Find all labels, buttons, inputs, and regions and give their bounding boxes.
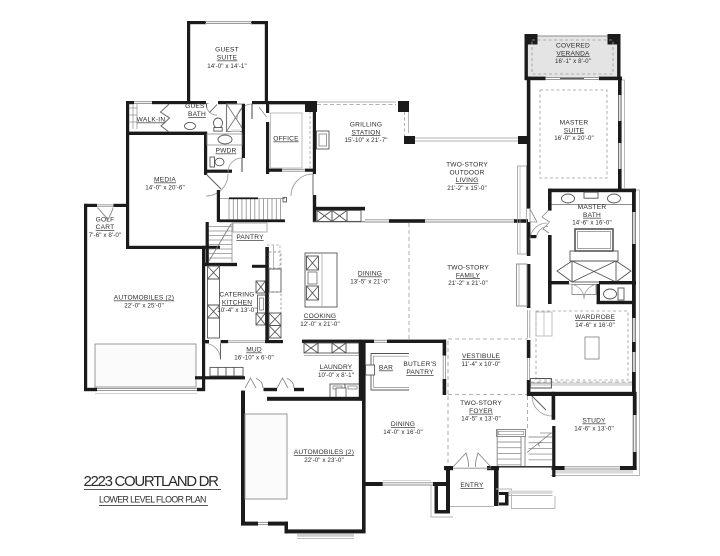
svg-text:14'-6" x 13'-0": 14'-6" x 13'-0" [574,426,614,433]
svg-text:LOWER LEVEL FLOOR PLAN: LOWER LEVEL FLOOR PLAN [99,495,207,505]
svg-text:PANTRY: PANTRY [236,234,264,241]
svg-text:SUITE: SUITE [564,127,585,134]
svg-text:DINING: DINING [358,271,382,278]
svg-text:TWO-STORY: TWO-STORY [460,400,502,407]
svg-text:PANTRY: PANTRY [406,369,434,376]
svg-text:12'-0" x 21'-0": 12'-0" x 21'-0" [300,321,340,328]
svg-text:SUITE: SUITE [217,55,238,62]
svg-text:16'-0" x 20'-0": 16'-0" x 20'-0" [554,135,594,142]
svg-text:COOKING: COOKING [304,313,337,320]
svg-text:MEDIA: MEDIA [154,177,176,184]
svg-text:MASTER: MASTER [578,204,607,211]
svg-text:11'-4" x 10'-0": 11'-4" x 10'-0" [461,361,500,368]
svg-text:BUTLER'S: BUTLER'S [403,361,437,368]
svg-text:WALK-IN: WALK-IN [137,117,166,124]
svg-text:OFFICE: OFFICE [273,136,299,143]
svg-text:10'-0" x 8'-1": 10'-0" x 8'-1" [318,372,354,379]
svg-text:16'-1" x 8'-0": 16'-1" x 8'-0" [555,58,591,65]
svg-text:2223 COURTLAND DR: 2223 COURTLAND DR [84,473,221,490]
svg-text:13'-5" x 21'-0": 13'-5" x 21'-0" [350,279,390,286]
svg-text:14'-6" x 16'-0": 14'-6" x 16'-0" [572,220,612,227]
svg-text:CATERING: CATERING [219,292,254,299]
svg-text:TWO-STORY: TWO-STORY [446,162,488,169]
svg-text:FAMILY: FAMILY [456,272,481,279]
svg-text:14'-0" x 16'-0": 14'-0" x 16'-0" [383,429,423,436]
svg-text:STUDY: STUDY [582,418,606,425]
svg-text:AUTOMOBILES (2): AUTOMOBILES (2) [114,295,174,302]
svg-text:21'-2" x 21'-0": 21'-2" x 21'-0" [448,280,488,287]
svg-text:COVERED: COVERED [556,43,590,50]
svg-text:KITCHEN: KITCHEN [222,299,252,306]
svg-text:MUD: MUD [246,347,262,354]
svg-text:14'-0" x 14'-1": 14'-0" x 14'-1" [207,63,247,70]
svg-text:VESTIBULE: VESTIBULE [462,353,500,360]
svg-text:CART: CART [96,224,115,231]
svg-text:ENTRY: ENTRY [460,482,484,489]
svg-text:WARDROBE: WARDROBE [575,314,616,321]
svg-text:14'-5" x 13'-0": 14'-5" x 13'-0" [461,416,501,423]
svg-text:VERANDA: VERANDA [556,50,590,57]
svg-text:STATION: STATION [352,129,381,136]
svg-text:BATH: BATH [583,212,601,219]
svg-text:OUTDOOR: OUTDOOR [449,169,484,176]
svg-text:DINING: DINING [391,421,415,428]
svg-text:GUEST: GUEST [185,103,209,110]
svg-text:10'-4" x 13'-0": 10'-4" x 13'-0" [217,307,257,314]
svg-text:14'-0" x 20'-6": 14'-0" x 20'-6" [145,185,185,192]
svg-text:PWDR: PWDR [216,148,237,155]
svg-text:7'-6" x 8'-0": 7'-6" x 8'-0" [89,232,121,239]
svg-text:16'-10" x 6'-0": 16'-10" x 6'-0" [234,355,274,362]
svg-text:BATH: BATH [188,111,206,118]
svg-text:MASTER: MASTER [560,120,589,127]
svg-text:FOYER: FOYER [469,408,493,415]
svg-text:AUTOMOBILES (2): AUTOMOBILES (2) [294,449,354,456]
svg-text:22'-0" x 25'-0": 22'-0" x 25'-0" [124,303,164,310]
svg-text:21'-2" x 15'-0": 21'-2" x 15'-0" [447,185,487,192]
svg-text:14'-6" x 16'-0": 14'-6" x 16'-0" [575,322,615,329]
svg-text:GOLF: GOLF [96,217,115,224]
svg-text:TWO-STORY: TWO-STORY [447,265,489,272]
svg-text:GUEST: GUEST [215,47,239,54]
svg-text:LIVING: LIVING [456,177,479,184]
svg-text:GRILLING: GRILLING [350,122,382,129]
svg-text:15'-10" x 21'-7": 15'-10" x 21'-7" [344,137,387,144]
svg-text:22'-0" x 23'-0": 22'-0" x 23'-0" [304,457,344,464]
svg-text:BAR: BAR [379,365,393,372]
svg-text:LAUNDRY: LAUNDRY [320,364,353,371]
